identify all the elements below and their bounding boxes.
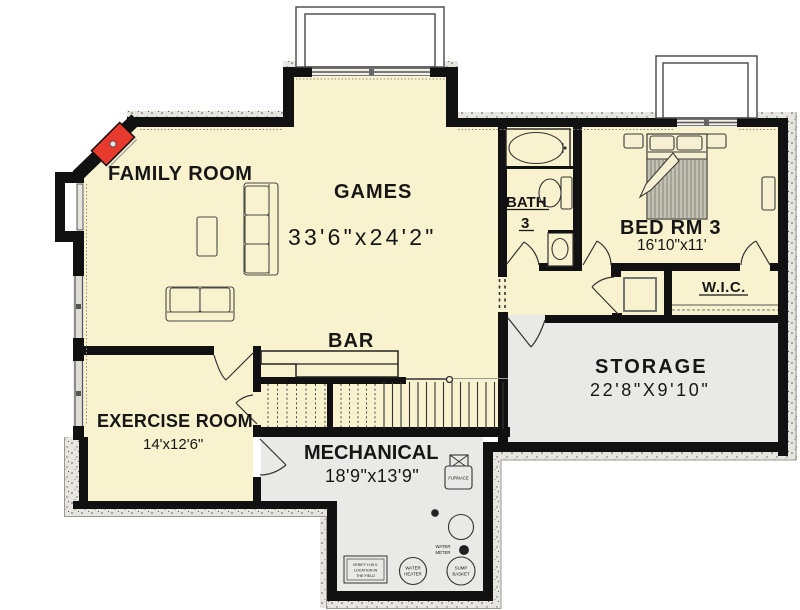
svg-text:VERIFY H.W.V.: VERIFY H.W.V.	[353, 563, 378, 567]
svg-text:THE FIELD: THE FIELD	[356, 574, 375, 578]
svg-text:3: 3	[521, 215, 529, 232]
svg-text:WATER: WATER	[405, 566, 420, 571]
svg-text:MECHANICAL: MECHANICAL	[304, 442, 438, 464]
svg-text:GAMES: GAMES	[334, 181, 412, 203]
svg-text:EXERCISE ROOM: EXERCISE ROOM	[97, 411, 253, 431]
svg-text:BASKET: BASKET	[452, 572, 470, 577]
svg-text:HEATER: HEATER	[404, 572, 421, 577]
svg-text:33'6"x24'2": 33'6"x24'2"	[288, 224, 437, 250]
svg-text:STORAGE: STORAGE	[595, 356, 708, 378]
svg-text:16'10"x11': 16'10"x11'	[637, 237, 707, 254]
svg-text:14'x12'6": 14'x12'6"	[143, 436, 203, 453]
svg-text:FAMILY ROOM: FAMILY ROOM	[108, 163, 252, 185]
svg-text:BAR: BAR	[328, 330, 374, 352]
svg-text:22'8"X9'10": 22'8"X9'10"	[590, 380, 710, 400]
svg-text:WATER: WATER	[435, 544, 450, 549]
svg-text:LOCATION IN: LOCATION IN	[354, 569, 378, 573]
svg-text:18'9"x13'9": 18'9"x13'9"	[325, 466, 419, 486]
svg-text:FURNACE: FURNACE	[448, 476, 468, 481]
svg-text:BED RM 3: BED RM 3	[620, 217, 721, 239]
svg-text:BATH: BATH	[506, 194, 547, 211]
svg-text:SUMP: SUMP	[455, 566, 468, 571]
svg-text:W.I.C.: W.I.C.	[702, 279, 746, 296]
svg-text:METER: METER	[435, 550, 450, 555]
